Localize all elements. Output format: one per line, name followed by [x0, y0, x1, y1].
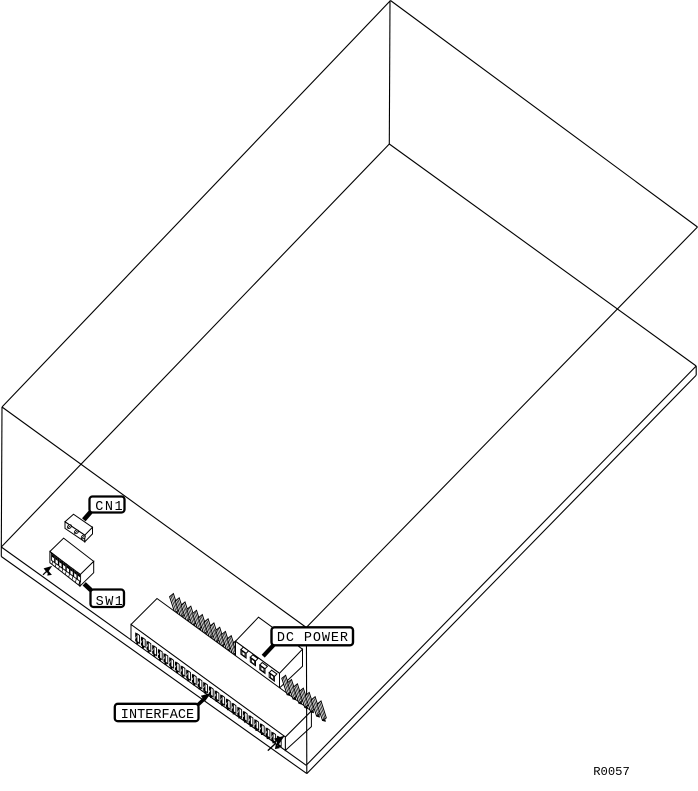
- svg-text:SW1: SW1: [96, 595, 125, 610]
- svg-text:INTERFACE: INTERFACE: [121, 708, 194, 723]
- svg-text:DC POWER: DC POWER: [277, 631, 349, 646]
- svg-text:CN1: CN1: [95, 500, 124, 515]
- svg-text:R0057: R0057: [593, 765, 630, 779]
